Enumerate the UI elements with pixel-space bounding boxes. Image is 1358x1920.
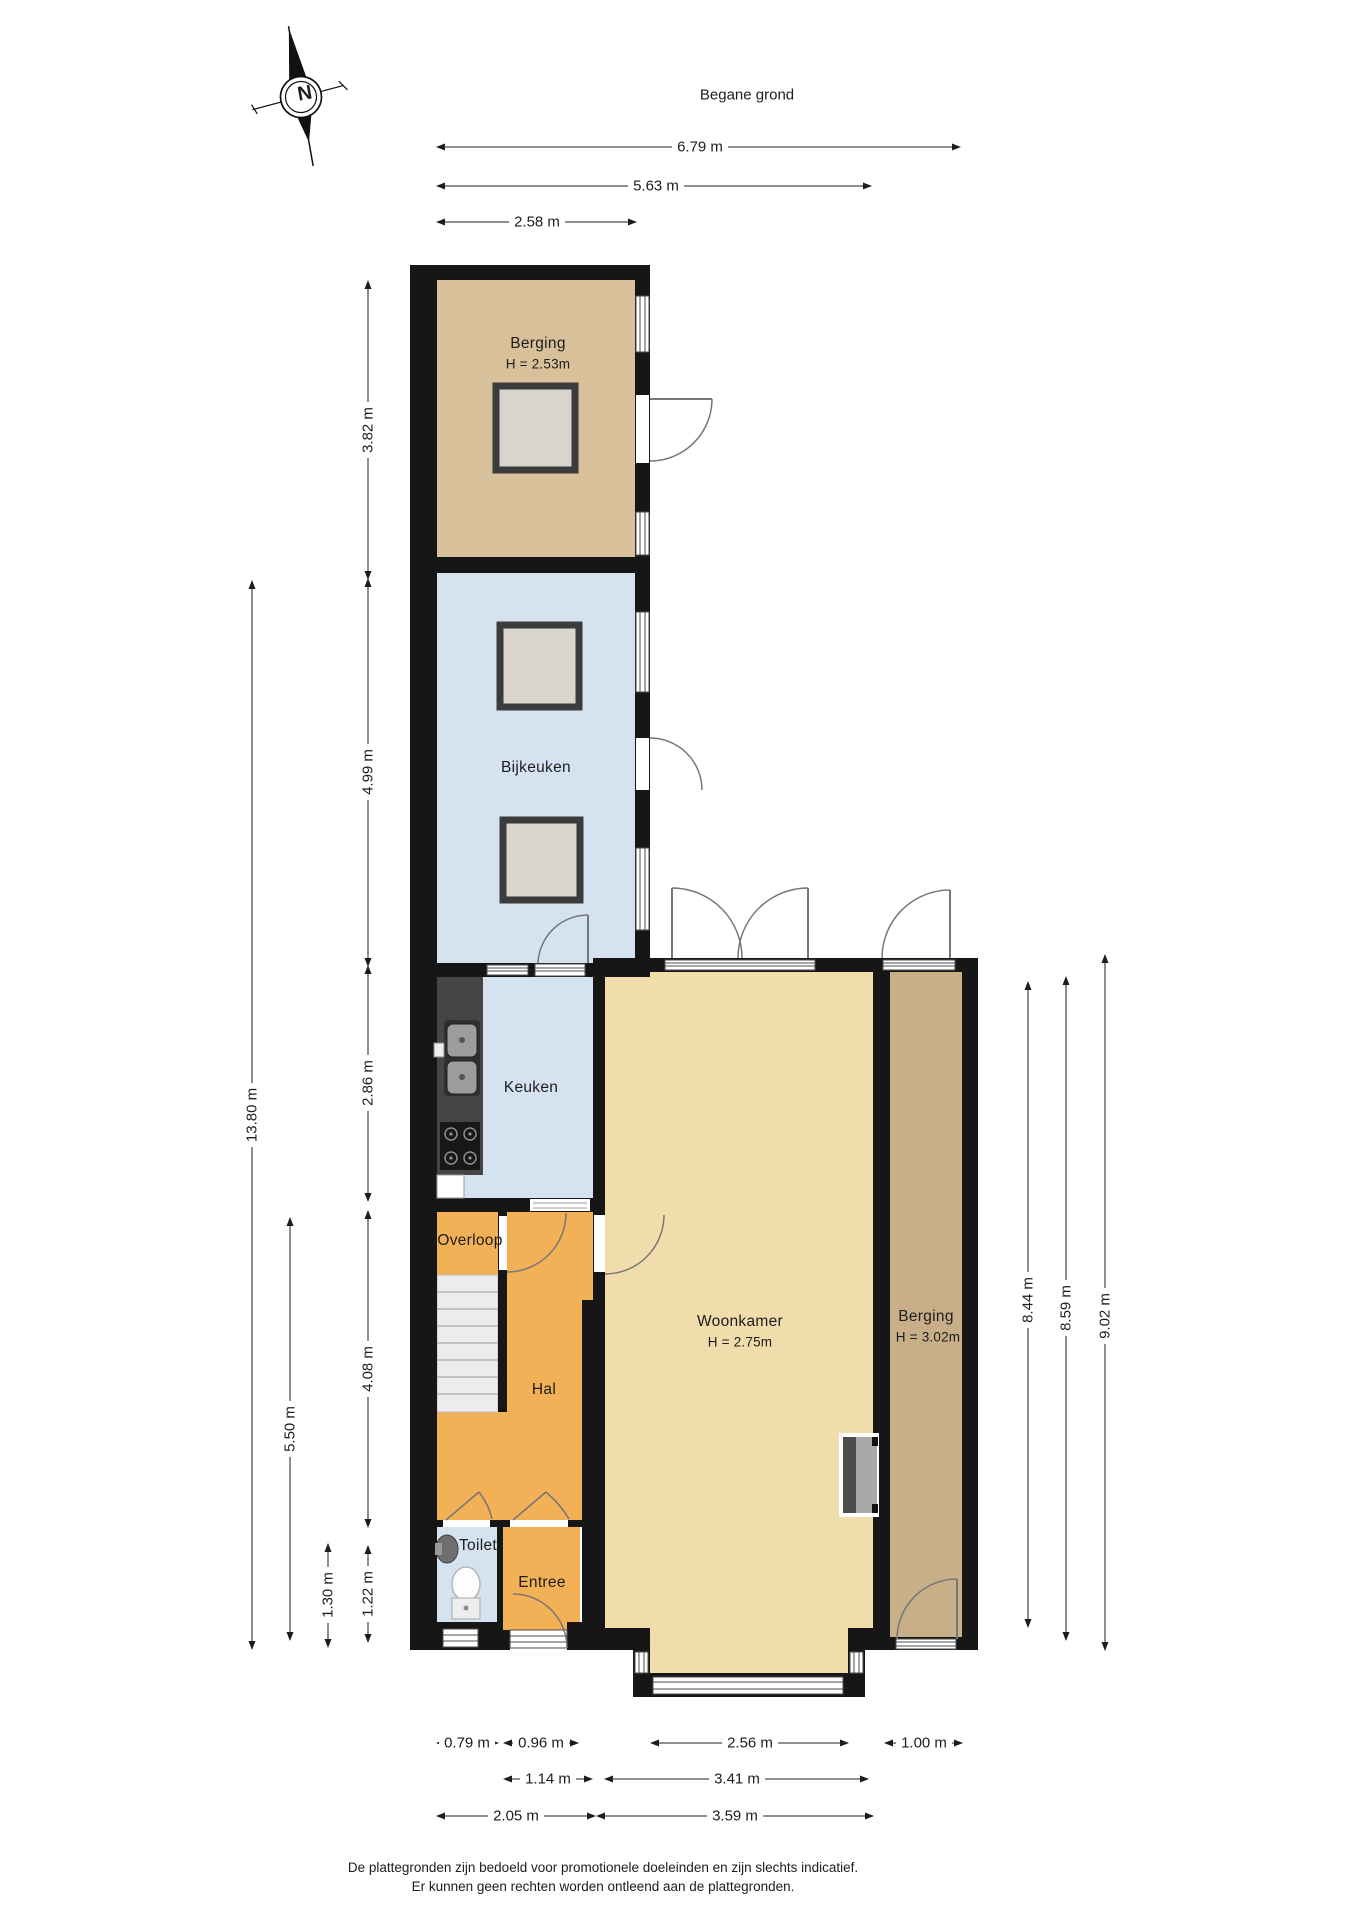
room-label-hal: Hal (532, 1381, 556, 1399)
dim-label: 3.59 m (707, 1808, 763, 1825)
skylight-box-bijkeuken-1 (500, 625, 579, 707)
room-hal-floor-1 (507, 1212, 593, 1300)
room-woonkamer-bay-floor (650, 1628, 848, 1673)
dim-label: 0.96 m (513, 1735, 569, 1752)
floor-plan-canvas (0, 0, 1358, 1920)
dim-label: 5.50 m (282, 1401, 299, 1457)
stove (440, 1122, 480, 1170)
dim-label: 3.41 m (709, 1771, 765, 1788)
front-door-sill (510, 1630, 567, 1648)
fireplace (839, 1433, 879, 1517)
kitchen-counter (434, 977, 483, 1198)
window (635, 1652, 648, 1673)
window (653, 1677, 843, 1694)
room-hal-floor-2 (507, 1300, 582, 1520)
room-height-berging-right: H = 3.02m (896, 1330, 960, 1345)
dim-label: 1.22 m (360, 1566, 377, 1622)
skylight-box-berging (496, 386, 575, 470)
dim-label: 2.56 m (722, 1735, 778, 1752)
dim-label: 8.44 m (1020, 1272, 1037, 1328)
door-opening (510, 1520, 568, 1527)
disclaimer-line-1: De plattegronden zijn bedoeld voor promo… (0, 1860, 1206, 1875)
dim-label: 1.14 m (520, 1771, 576, 1788)
dim-label: 8.59 m (1058, 1280, 1075, 1336)
passage-opening (530, 1199, 590, 1211)
window (896, 1639, 956, 1649)
dim-label: 0.79 m (439, 1735, 495, 1752)
dim-label: 6.79 m (672, 139, 728, 156)
window (636, 848, 649, 930)
dim-label: 1.00 m (896, 1735, 952, 1752)
door-opening (636, 738, 649, 790)
room-label-overloop: Overloop (437, 1232, 502, 1250)
staircase (437, 1275, 498, 1412)
dim-label: 2.58 m (509, 214, 565, 231)
page-title: Begane grond (700, 87, 794, 104)
dim-label: 2.86 m (360, 1055, 377, 1111)
room-label-keuken: Keuken (504, 1079, 558, 1097)
window (443, 1629, 478, 1647)
room-berging-right-floor (890, 972, 962, 1637)
faucet (434, 1043, 444, 1057)
window (850, 1652, 863, 1673)
door-opening (636, 395, 649, 463)
window (883, 960, 955, 970)
door-opening (443, 1520, 490, 1527)
dim-label: 13.80 m (244, 1083, 261, 1147)
disclaimer-line-2: Er kunnen geen rechten worden ontleend a… (0, 1879, 1206, 1894)
dim-label: 2.05 m (488, 1808, 544, 1825)
door-opening (594, 1215, 605, 1272)
dim-label: 1.30 m (320, 1567, 337, 1623)
dim-label: 5.63 m (628, 178, 684, 195)
floorplan-page: Begane grond N Berging H = 2.53m Bijkeuk… (0, 0, 1358, 1920)
skylight-box-bijkeuken-2 (503, 820, 580, 900)
dim-label: 4.99 m (360, 744, 377, 800)
window (665, 960, 815, 970)
dim-label: 3.82 m (360, 402, 377, 458)
window (636, 512, 649, 555)
dim-label: 9.02 m (1097, 1288, 1114, 1344)
window (636, 296, 649, 352)
dim-label: 4.08 m (360, 1341, 377, 1397)
room-label-woonkamer: Woonkamer (697, 1313, 783, 1331)
interior-window (487, 964, 585, 976)
room-hal-floor-3 (437, 1412, 507, 1520)
room-label-berging-right: Berging (898, 1308, 954, 1326)
toilet-bowl (452, 1567, 480, 1601)
room-height-woonkamer: H = 2.75m (708, 1335, 772, 1350)
window (636, 612, 649, 692)
room-label-toilet: Toilet (459, 1537, 497, 1555)
room-woonkamer-floor (605, 972, 873, 1628)
room-height-berging-top: H = 2.53m (506, 357, 570, 372)
room-label-entree: Entree (518, 1574, 565, 1592)
room-label-bijkeuken: Bijkeuken (501, 759, 571, 777)
room-label-berging-top: Berging (510, 335, 566, 353)
